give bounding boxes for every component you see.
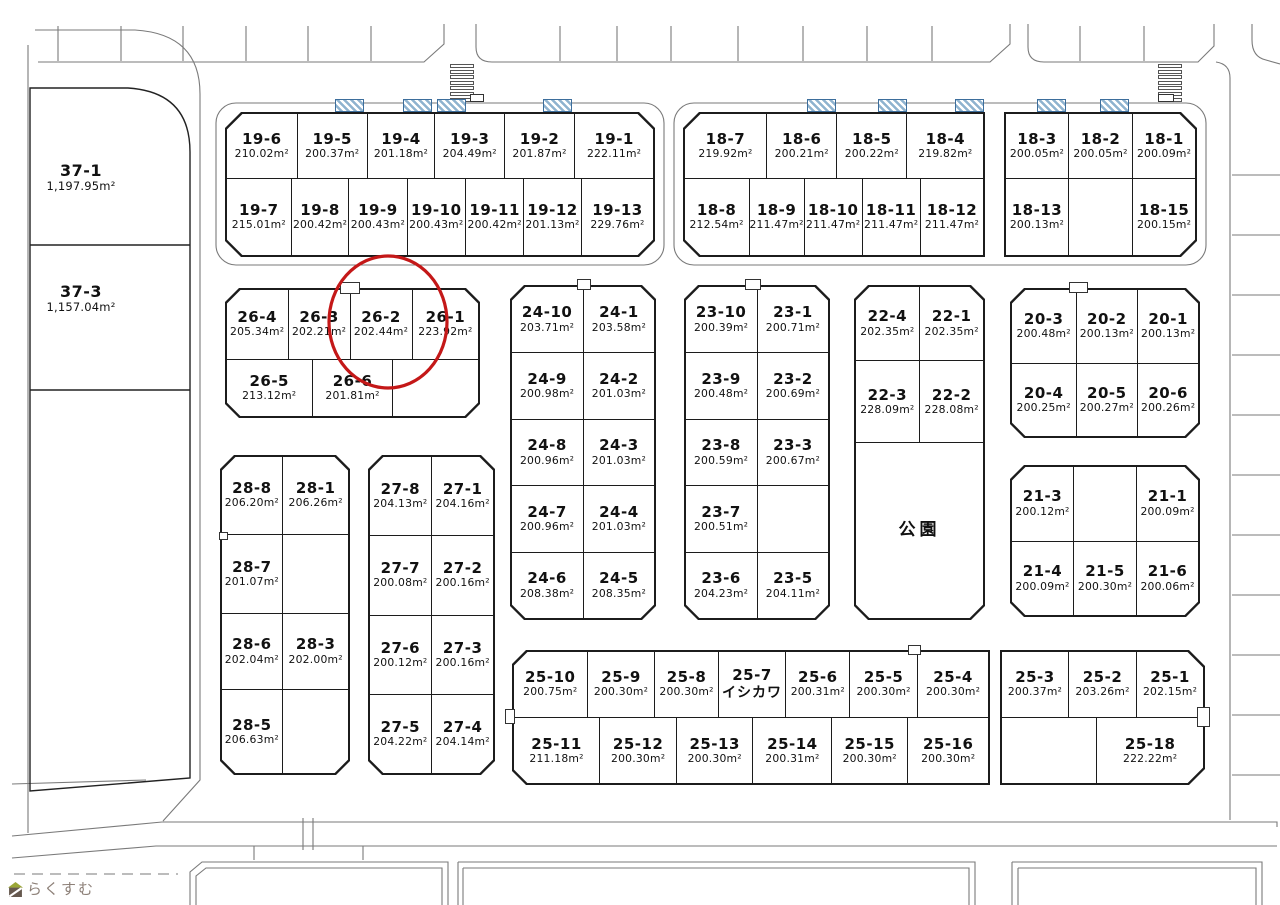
bottom-road-marks <box>254 818 363 860</box>
block-21: 21-3200.12m²21-1200.09m²21-4200.09m²21-5… <box>1010 465 1200 617</box>
block-body: 18-7219.92m²18-6200.21m²18-5200.22m²18-4… <box>685 114 984 256</box>
lot-number: 24-6 <box>527 570 567 587</box>
lot-area: 200.43m² <box>351 219 405 232</box>
lot-number: 23-8 <box>701 437 741 454</box>
lot-area: 200.30m² <box>688 753 742 766</box>
lot-area: 200.30m² <box>926 686 980 699</box>
lot-number: 25-14 <box>767 736 817 753</box>
lot-area: 200.08m² <box>373 577 427 590</box>
lot-area: 200.13m² <box>1141 328 1195 341</box>
hatch-mark <box>1100 99 1129 112</box>
lot-area: 204.14m² <box>436 736 490 749</box>
lot-24-6[interactable]: 24-6208.38m² <box>512 553 583 619</box>
block-row: 27-6200.12m²27-3200.16m² <box>370 615 494 694</box>
lot-area: 201.07m² <box>225 576 279 589</box>
lot-25-11[interactable]: 25-11211.18m² <box>514 718 600 783</box>
lot-23-3[interactable]: 23-3200.67m² <box>757 420 829 486</box>
lot-area: 200.67m² <box>766 455 820 468</box>
lot-number: 24-10 <box>522 304 572 321</box>
lot-number: 20-2 <box>1087 311 1127 328</box>
lot-area: 204.23m² <box>694 588 748 601</box>
lot-number: 37-3 <box>41 283 121 301</box>
lot-27-7[interactable]: 27-7200.08m² <box>370 536 431 614</box>
lot-24-9[interactable]: 24-9200.98m² <box>512 353 583 419</box>
lot-23-10[interactable]: 23-10200.39m² <box>686 287 757 353</box>
lot-number: 20-5 <box>1087 385 1127 402</box>
lot-28-6[interactable]: 28-6202.04m² <box>222 614 282 689</box>
lot-22-2[interactable]: 22-2228.08m² <box>919 361 983 442</box>
lot-area: 200.09m² <box>1140 506 1194 519</box>
lot-area: 202.15m² <box>1143 686 1197 699</box>
lot-area: 202.21m² <box>292 326 346 339</box>
lot-area: 202.35m² <box>925 326 979 339</box>
lot-22-1[interactable]: 22-1202.35m² <box>919 287 983 361</box>
lot-28-7[interactable]: 28-7201.07m² <box>222 535 282 613</box>
lot-number: 27-2 <box>443 560 483 577</box>
block-body: 26-4205.34m²26-3202.21m²26-2202.44m²26-1… <box>227 290 479 417</box>
lot-number: 18-2 <box>1081 131 1121 148</box>
block-24: 24-10203.71m²24-1203.58m²24-9200.98m²24-… <box>510 285 656 620</box>
lot-18-2[interactable]: 18-2200.05m² <box>1068 114 1132 178</box>
lot-number: 25-15 <box>844 736 894 753</box>
lot-21-1[interactable]: 21-1200.09m² <box>1136 467 1199 541</box>
lot-25-4[interactable]: 25-4200.30m² <box>917 652 988 717</box>
crosswalk-rung <box>1158 64 1182 68</box>
lot-area: 202.44m² <box>354 326 408 339</box>
lot-area: 200.13m² <box>1010 219 1064 232</box>
lot-area: 200.30m² <box>1078 581 1132 594</box>
lot-area: 1,157.04m² <box>41 301 121 315</box>
lot-number: 28-1 <box>296 480 336 497</box>
lot-18-3[interactable]: 18-3200.05m² <box>1006 114 1069 178</box>
crosswalk-rung <box>450 86 474 90</box>
lot-area: 200.16m² <box>436 657 490 670</box>
lot-area: 200.48m² <box>1017 328 1071 341</box>
lot-27-8[interactable]: 27-8204.13m² <box>370 457 431 535</box>
lot-25-15[interactable]: 25-15200.30m² <box>831 718 907 783</box>
lot-number: 25-16 <box>923 736 973 753</box>
lot-number: 19-3 <box>450 131 490 148</box>
lot-number: 25-11 <box>531 736 581 753</box>
lot-19-5[interactable]: 19-5200.37m² <box>297 114 367 178</box>
lot-21-6[interactable]: 21-6200.06m² <box>1136 542 1199 616</box>
block-row: 18-7219.92m²18-6200.21m²18-5200.22m²18-4… <box>685 114 984 178</box>
lot-number: 22-1 <box>932 308 972 325</box>
lot-25-1[interactable]: 25-1202.15m² <box>1136 652 1204 717</box>
lot-25-5[interactable]: 25-5200.30m² <box>849 652 916 717</box>
crosswalk-rung <box>450 75 474 79</box>
block-body: 22-4202.35m²22-1202.35m²22-3228.09m²22-2… <box>856 287 984 619</box>
crosswalk-rung <box>1158 70 1182 74</box>
lot-26-2[interactable]: 26-2202.44m² <box>350 290 412 359</box>
hatch-mark <box>403 99 432 112</box>
block-row: 19-6210.02m²19-5200.37m²19-4201.18m²19-3… <box>227 114 654 178</box>
lot-24-5[interactable]: 24-5208.35m² <box>583 553 655 619</box>
boundary-marker <box>908 645 921 655</box>
lot-area: 200.12m² <box>1015 506 1069 519</box>
lot-number: 19-1 <box>594 131 634 148</box>
block-row: 24-7200.96m²24-4201.03m² <box>512 485 655 552</box>
lot-area: 200.22m² <box>845 148 899 161</box>
lot-27-4[interactable]: 27-4204.14m² <box>431 695 493 773</box>
lot-18-11[interactable]: 18-11211.47m² <box>862 179 920 256</box>
house-icon <box>8 882 23 897</box>
lot-24-7[interactable]: 24-7200.96m² <box>512 486 583 552</box>
lot-number: 20-6 <box>1148 385 1188 402</box>
lot-number: 28-5 <box>232 717 272 734</box>
lot-19-6[interactable]: 19-6210.02m² <box>227 114 297 178</box>
lot-area: 201.13m² <box>525 219 579 232</box>
lot-18-12[interactable]: 18-12211.47m² <box>920 179 984 256</box>
lot-number: 20-1 <box>1148 311 1188 328</box>
lot-number: 26-6 <box>333 373 373 390</box>
lot-number: 24-2 <box>599 371 639 388</box>
lot-25-8[interactable]: 25-8200.30m² <box>654 652 717 717</box>
lot-area: 204.11m² <box>766 588 820 601</box>
lot-area: 208.38m² <box>520 588 574 601</box>
lot-area: 211.47m² <box>925 219 979 232</box>
lot-area: 206.63m² <box>225 734 279 747</box>
lot-area: 200.59m² <box>694 455 748 468</box>
lot-25-14[interactable]: 25-14200.31m² <box>752 718 831 783</box>
lot-number: 28-7 <box>232 559 272 576</box>
lot-area: 200.05m² <box>1073 148 1127 161</box>
lot-19-3[interactable]: 19-3204.49m² <box>434 114 504 178</box>
lot-18-10[interactable]: 18-10211.47m² <box>804 179 862 256</box>
lot-25-3[interactable]: 25-3200.37m² <box>1002 652 1069 717</box>
lot-area: 201.03m² <box>592 388 646 401</box>
lot-number: 26-5 <box>249 373 289 390</box>
lot-24-1[interactable]: 24-1203.58m² <box>583 287 655 353</box>
lot-number: 19-4 <box>381 131 421 148</box>
block-row: 18-8212.54m²18-9211.47m²18-10211.47m²18-… <box>685 178 984 256</box>
lot-area: 200.48m² <box>694 388 748 401</box>
lot-number: 24-5 <box>599 570 639 587</box>
lot-28-8[interactable]: 28-8206.20m² <box>222 457 282 534</box>
lot-area: 229.76m² <box>590 219 644 232</box>
lot-number: 19-9 <box>358 202 398 219</box>
lot-18-13[interactable]: 18-13200.13m² <box>1006 179 1069 256</box>
lot-21-4[interactable]: 21-4200.09m² <box>1012 542 1074 616</box>
lot-area: 201.87m² <box>512 148 566 161</box>
lot-25-2[interactable]: 25-2203.26m² <box>1068 652 1136 717</box>
rakusumu-logo[interactable]: らくすむ <box>8 882 95 897</box>
lot-24-2[interactable]: 24-2201.03m² <box>583 353 655 419</box>
lot-19-11[interactable]: 19-11200.42m² <box>465 179 523 256</box>
lot-number: 18-7 <box>706 131 746 148</box>
lot-number: 23-10 <box>696 304 746 321</box>
block-20: 20-3200.48m²20-2200.13m²20-1200.13m²20-4… <box>1010 288 1200 438</box>
lot-28-3[interactable]: 28-3202.00m² <box>282 614 348 689</box>
lot-number: 25-8 <box>667 669 707 686</box>
block-row: 23-7200.51m² <box>686 485 829 552</box>
block-body: 28-8206.20m²28-1206.26m²28-7201.07m²28-6… <box>222 457 349 774</box>
lot-28-1[interactable]: 28-1206.26m² <box>282 457 348 534</box>
lot-number: 28-8 <box>232 480 272 497</box>
lot-number: 19-7 <box>239 202 279 219</box>
lot-19-10[interactable]: 19-10200.43m² <box>407 179 465 256</box>
lot-number: 23-1 <box>773 304 813 321</box>
bottom-parcel-blocks <box>190 862 1262 905</box>
lot-area: 222.22m² <box>1123 753 1177 766</box>
lot-area: 200.06m² <box>1140 581 1194 594</box>
block-27: 27-8204.13m²27-1204.16m²27-7200.08m²27-2… <box>368 455 495 775</box>
block-row: 27-8204.13m²27-1204.16m² <box>370 457 494 535</box>
lot-19-2[interactable]: 19-2201.87m² <box>504 114 574 178</box>
lot-25-9[interactable]: 25-9200.30m² <box>587 652 654 717</box>
lot-area: 200.25m² <box>1017 402 1071 415</box>
lot-number: 19-6 <box>242 131 282 148</box>
lot-22-3[interactable]: 22-3228.09m² <box>856 361 919 442</box>
lot-number: 23-2 <box>773 371 813 388</box>
lot-number: 25-1 <box>1150 669 1190 686</box>
lot-number: 25-9 <box>601 669 641 686</box>
lot-number: 18-13 <box>1012 202 1062 219</box>
boundary-marker <box>505 709 515 724</box>
lot-25-6[interactable]: 25-6200.31m² <box>785 652 849 717</box>
block-body: 21-3200.12m²21-1200.09m²21-4200.09m²21-5… <box>1012 467 1199 616</box>
block-row: 27-5204.22m²27-4204.14m² <box>370 694 494 773</box>
lot-area: 200.05m² <box>1010 148 1064 161</box>
lot-18-9[interactable]: 18-9211.47m² <box>749 179 804 256</box>
lot-26-6[interactable]: 26-6201.81m² <box>312 360 392 417</box>
lot-number: 28-3 <box>296 636 336 653</box>
lot-area: 223.92m² <box>418 326 472 339</box>
lot-area: 211.47m² <box>864 219 918 232</box>
empty-lot <box>282 690 348 773</box>
lot-number: 27-7 <box>381 560 421 577</box>
lot-26-5[interactable]: 26-5213.12m² <box>227 360 312 417</box>
lot-27-6[interactable]: 27-6200.12m² <box>370 616 431 694</box>
lot-number: 18-5 <box>852 131 892 148</box>
lot-25-18[interactable]: 25-18222.22m² <box>1096 718 1203 783</box>
boundary-marker <box>1158 94 1174 102</box>
boundary-marker <box>1197 707 1210 727</box>
block-18-west: 18-7219.92m²18-6200.21m²18-5200.22m²18-4… <box>683 112 985 257</box>
lot-25-16[interactable]: 25-16200.30m² <box>907 718 988 783</box>
lot-19-9[interactable]: 19-9200.43m² <box>348 179 406 256</box>
empty-lot <box>1073 467 1136 541</box>
lot-number: 37-1 <box>41 162 121 180</box>
lot-19-13[interactable]: 19-13229.76m² <box>581 179 654 256</box>
lot-18-6[interactable]: 18-6200.21m² <box>766 114 836 178</box>
block-row: 公園 <box>856 442 984 618</box>
lot-18-8[interactable]: 18-8212.54m² <box>685 179 749 256</box>
hatch-mark <box>955 99 984 112</box>
lot-18-4[interactable]: 18-4219.82m² <box>906 114 983 178</box>
empty-lot <box>282 535 348 613</box>
block-19: 19-6210.02m²19-5200.37m²19-4201.18m²19-3… <box>225 112 655 257</box>
block-row: 27-7200.08m²27-2200.16m² <box>370 535 494 614</box>
lot-19-1[interactable]: 19-1222.11m² <box>574 114 653 178</box>
block-body: 27-8204.13m²27-1204.16m²27-7200.08m²27-2… <box>370 457 494 774</box>
lot-area: 200.09m² <box>1137 148 1191 161</box>
lot-20-5[interactable]: 20-5200.27m² <box>1076 364 1137 437</box>
lot-area: 203.26m² <box>1075 686 1129 699</box>
hatch-mark <box>807 99 836 112</box>
lot-area: 200.09m² <box>1015 581 1069 594</box>
lot-number: 27-4 <box>443 719 483 736</box>
lot-28-5[interactable]: 28-5206.63m² <box>222 690 282 773</box>
lot-24-10[interactable]: 24-10203.71m² <box>512 287 583 353</box>
crosswalk-rung <box>1158 86 1182 90</box>
lot-area: 219.92m² <box>698 148 752 161</box>
lot-area: 203.58m² <box>592 322 646 335</box>
lot-area: 228.09m² <box>860 404 914 417</box>
empty-lot <box>1068 179 1132 256</box>
lot-21-3[interactable]: 21-3200.12m² <box>1012 467 1074 541</box>
lot-37-1[interactable]: 37-1 1,197.95m² <box>41 162 121 194</box>
lot-number: 25-2 <box>1083 669 1123 686</box>
lot-22-4[interactable]: 22-4202.35m² <box>856 287 919 361</box>
lot-19-8[interactable]: 19-8200.42m² <box>291 179 348 256</box>
lot-area: 200.30m² <box>594 686 648 699</box>
lot-area: 228.08m² <box>925 404 979 417</box>
lot-27-5[interactable]: 27-5204.22m² <box>370 695 431 773</box>
lot-area: 222.11m² <box>587 148 641 161</box>
lot-area: 1,197.95m² <box>41 180 121 194</box>
lot-area: 200.31m² <box>765 753 819 766</box>
park-area: 公園 <box>856 443 984 618</box>
block-row: 25-3200.37m²25-2203.26m²25-1202.15m² <box>1002 652 1204 717</box>
lot-area: 200.30m² <box>921 753 975 766</box>
lot-number: 25-6 <box>798 669 838 686</box>
lot-23-8[interactable]: 23-8200.59m² <box>686 420 757 486</box>
block-body: 18-3200.05m²18-2200.05m²18-1200.09m²18-1… <box>1006 114 1196 256</box>
lot-area: 212.54m² <box>689 219 743 232</box>
lot-19-4[interactable]: 19-4201.18m² <box>367 114 435 178</box>
lot-25-12[interactable]: 25-12200.30m² <box>599 718 676 783</box>
hatch-mark <box>878 99 907 112</box>
lot-26-3[interactable]: 26-3202.21m² <box>288 290 350 359</box>
lot-number: 24-4 <box>599 504 639 521</box>
block-row: 18-13200.13m²18-15200.15m² <box>1006 178 1196 256</box>
lot-area: 200.42m² <box>468 219 522 232</box>
lot-23-5[interactable]: 23-5204.11m² <box>757 553 829 619</box>
lot-21-5[interactable]: 21-5200.30m² <box>1073 542 1136 616</box>
lot-24-3[interactable]: 24-3201.03m² <box>583 420 655 486</box>
lot-area: 200.12m² <box>373 657 427 670</box>
hatch-mark <box>335 99 364 112</box>
lot-23-1[interactable]: 23-1200.71m² <box>757 287 829 353</box>
lot-area: 200.69m² <box>766 388 820 401</box>
lot-number: 21-5 <box>1085 563 1125 580</box>
lot-number: 19-13 <box>592 202 642 219</box>
block-23: 23-10200.39m²23-1200.71m²23-9200.48m²23-… <box>684 285 830 620</box>
lot-25-13[interactable]: 25-13200.30m² <box>676 718 753 783</box>
lot-area: 200.30m² <box>843 753 897 766</box>
lot-number: 27-3 <box>443 640 483 657</box>
crosswalk-rung <box>450 81 474 85</box>
lot-24-8[interactable]: 24-8200.96m² <box>512 420 583 486</box>
lot-number: 25-12 <box>613 736 663 753</box>
lot-19-12[interactable]: 19-12201.13m² <box>523 179 580 256</box>
block-row: 28-7201.07m² <box>222 534 349 613</box>
lot-number: 18-8 <box>697 202 737 219</box>
lot-number: 23-6 <box>701 570 741 587</box>
hatch-mark <box>1037 99 1066 112</box>
lot-23-9[interactable]: 23-9200.48m² <box>686 353 757 419</box>
lot-number: 22-4 <box>868 308 908 325</box>
lot-number: 26-2 <box>361 309 401 326</box>
block-row: 21-4200.09m²21-5200.30m²21-6200.06m² <box>1012 541 1199 616</box>
lot-number: 21-3 <box>1023 488 1063 505</box>
lot-18-5[interactable]: 18-5200.22m² <box>836 114 906 178</box>
lot-27-3[interactable]: 27-3200.16m² <box>431 616 493 694</box>
lot-area: 200.21m² <box>775 148 829 161</box>
lot-18-1[interactable]: 18-1200.09m² <box>1132 114 1196 178</box>
lot-area: 211.18m² <box>529 753 583 766</box>
lot-26-1[interactable]: 26-1223.92m² <box>412 290 479 359</box>
lot-area: 200.71m² <box>766 322 820 335</box>
lot-20-3[interactable]: 20-3200.48m² <box>1012 290 1076 363</box>
lot-number: 27-5 <box>381 719 421 736</box>
block-row: 26-5213.12m²26-6201.81m² <box>227 359 479 417</box>
block-body: 25-10200.75m²25-9200.30m²25-8200.30m²25-… <box>514 652 989 784</box>
lot-37-3[interactable]: 37-3 1,157.04m² <box>41 283 121 315</box>
lot-area: 205.34m² <box>230 326 284 339</box>
lot-area: 206.26m² <box>289 497 343 510</box>
block-25-west: 25-10200.75m²25-9200.30m²25-8200.30m²25-… <box>512 650 990 785</box>
lot-area: 201.03m² <box>592 455 646 468</box>
lot-27-2[interactable]: 27-2200.16m² <box>431 536 493 614</box>
lot-area: 202.35m² <box>860 326 914 339</box>
lot-number: 24-1 <box>599 304 639 321</box>
lot-area: 200.39m² <box>694 322 748 335</box>
lot-26-4[interactable]: 26-4205.34m² <box>227 290 288 359</box>
lot-area: 211.47m² <box>749 219 803 232</box>
block-row: 28-6202.04m²28-3202.00m² <box>222 613 349 689</box>
lot-number: 18-15 <box>1139 202 1189 219</box>
block-25-east: 25-3200.37m²25-2203.26m²25-1202.15m²25-1… <box>1000 650 1205 785</box>
lot-20-6[interactable]: 20-6200.26m² <box>1137 364 1198 437</box>
lot-number: 27-6 <box>381 640 421 657</box>
lot-number: 18-10 <box>808 202 858 219</box>
lot-20-4[interactable]: 20-4200.25m² <box>1012 364 1076 437</box>
block-row: 25-18222.22m² <box>1002 717 1204 783</box>
boundary-marker <box>219 532 228 540</box>
lot-23-6[interactable]: 23-6204.23m² <box>686 553 757 619</box>
lot-number: 18-4 <box>926 131 966 148</box>
lot-number: 公園 <box>899 521 941 541</box>
lot-area: 210.02m² <box>235 148 289 161</box>
lot-25-10[interactable]: 25-10200.75m² <box>514 652 587 717</box>
lot-number: 23-9 <box>701 371 741 388</box>
lot-25-7[interactable]: 25-7イシカワ <box>718 652 785 717</box>
lot-area: イシカワ <box>722 685 782 702</box>
lot-area: 200.26m² <box>1141 402 1195 415</box>
lot-18-7[interactable]: 18-7219.92m² <box>685 114 767 178</box>
lot-23-7[interactable]: 23-7200.51m² <box>686 486 757 552</box>
lot-19-7[interactable]: 19-7215.01m² <box>227 179 291 256</box>
lot-area: 200.30m² <box>659 686 713 699</box>
right-road-line <box>1216 62 1230 820</box>
block-row: 24-8200.96m²24-3201.03m² <box>512 419 655 486</box>
block-row: 21-3200.12m²21-1200.09m² <box>1012 467 1199 541</box>
lot-area: 200.15m² <box>1137 219 1191 232</box>
lot-20-1[interactable]: 20-1200.13m² <box>1137 290 1198 363</box>
lot-24-4[interactable]: 24-4201.03m² <box>583 486 655 552</box>
lot-number: 20-4 <box>1024 385 1064 402</box>
block-28: 28-8206.20m²28-1206.26m²28-7201.07m²28-6… <box>220 455 350 775</box>
block-row: 19-7215.01m²19-8200.42m²19-9200.43m²19-1… <box>227 178 654 256</box>
block-body: 23-10200.39m²23-1200.71m²23-9200.48m²23-… <box>686 287 829 619</box>
hatch-mark <box>437 99 466 112</box>
lot-20-2[interactable]: 20-2200.13m² <box>1076 290 1137 363</box>
lot-23-2[interactable]: 23-2200.69m² <box>757 353 829 419</box>
lot-27-1[interactable]: 27-1204.16m² <box>431 457 493 535</box>
lot-18-15[interactable]: 18-15200.15m² <box>1132 179 1196 256</box>
